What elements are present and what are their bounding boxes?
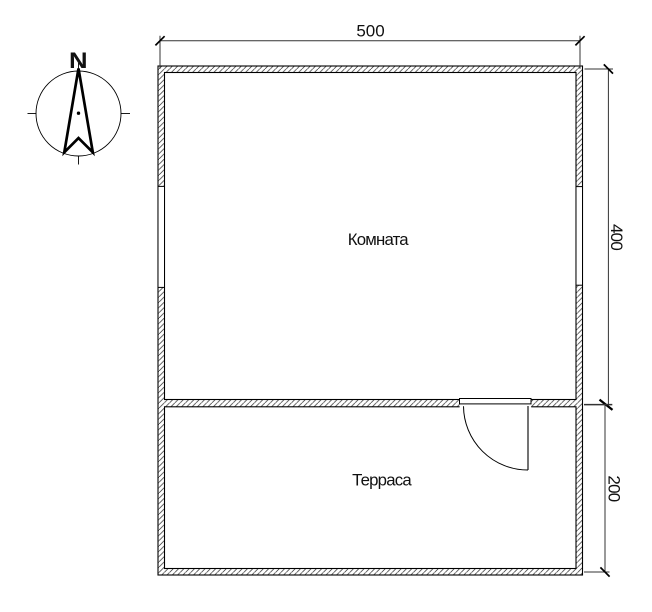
svg-text:200: 200 — [605, 475, 624, 501]
svg-text:Комната: Комната — [348, 230, 410, 249]
svg-text:N: N — [69, 49, 88, 74]
svg-text:500: 500 — [356, 22, 384, 41]
svg-text:400: 400 — [607, 224, 626, 250]
svg-text:Терраса: Терраса — [352, 471, 412, 490]
